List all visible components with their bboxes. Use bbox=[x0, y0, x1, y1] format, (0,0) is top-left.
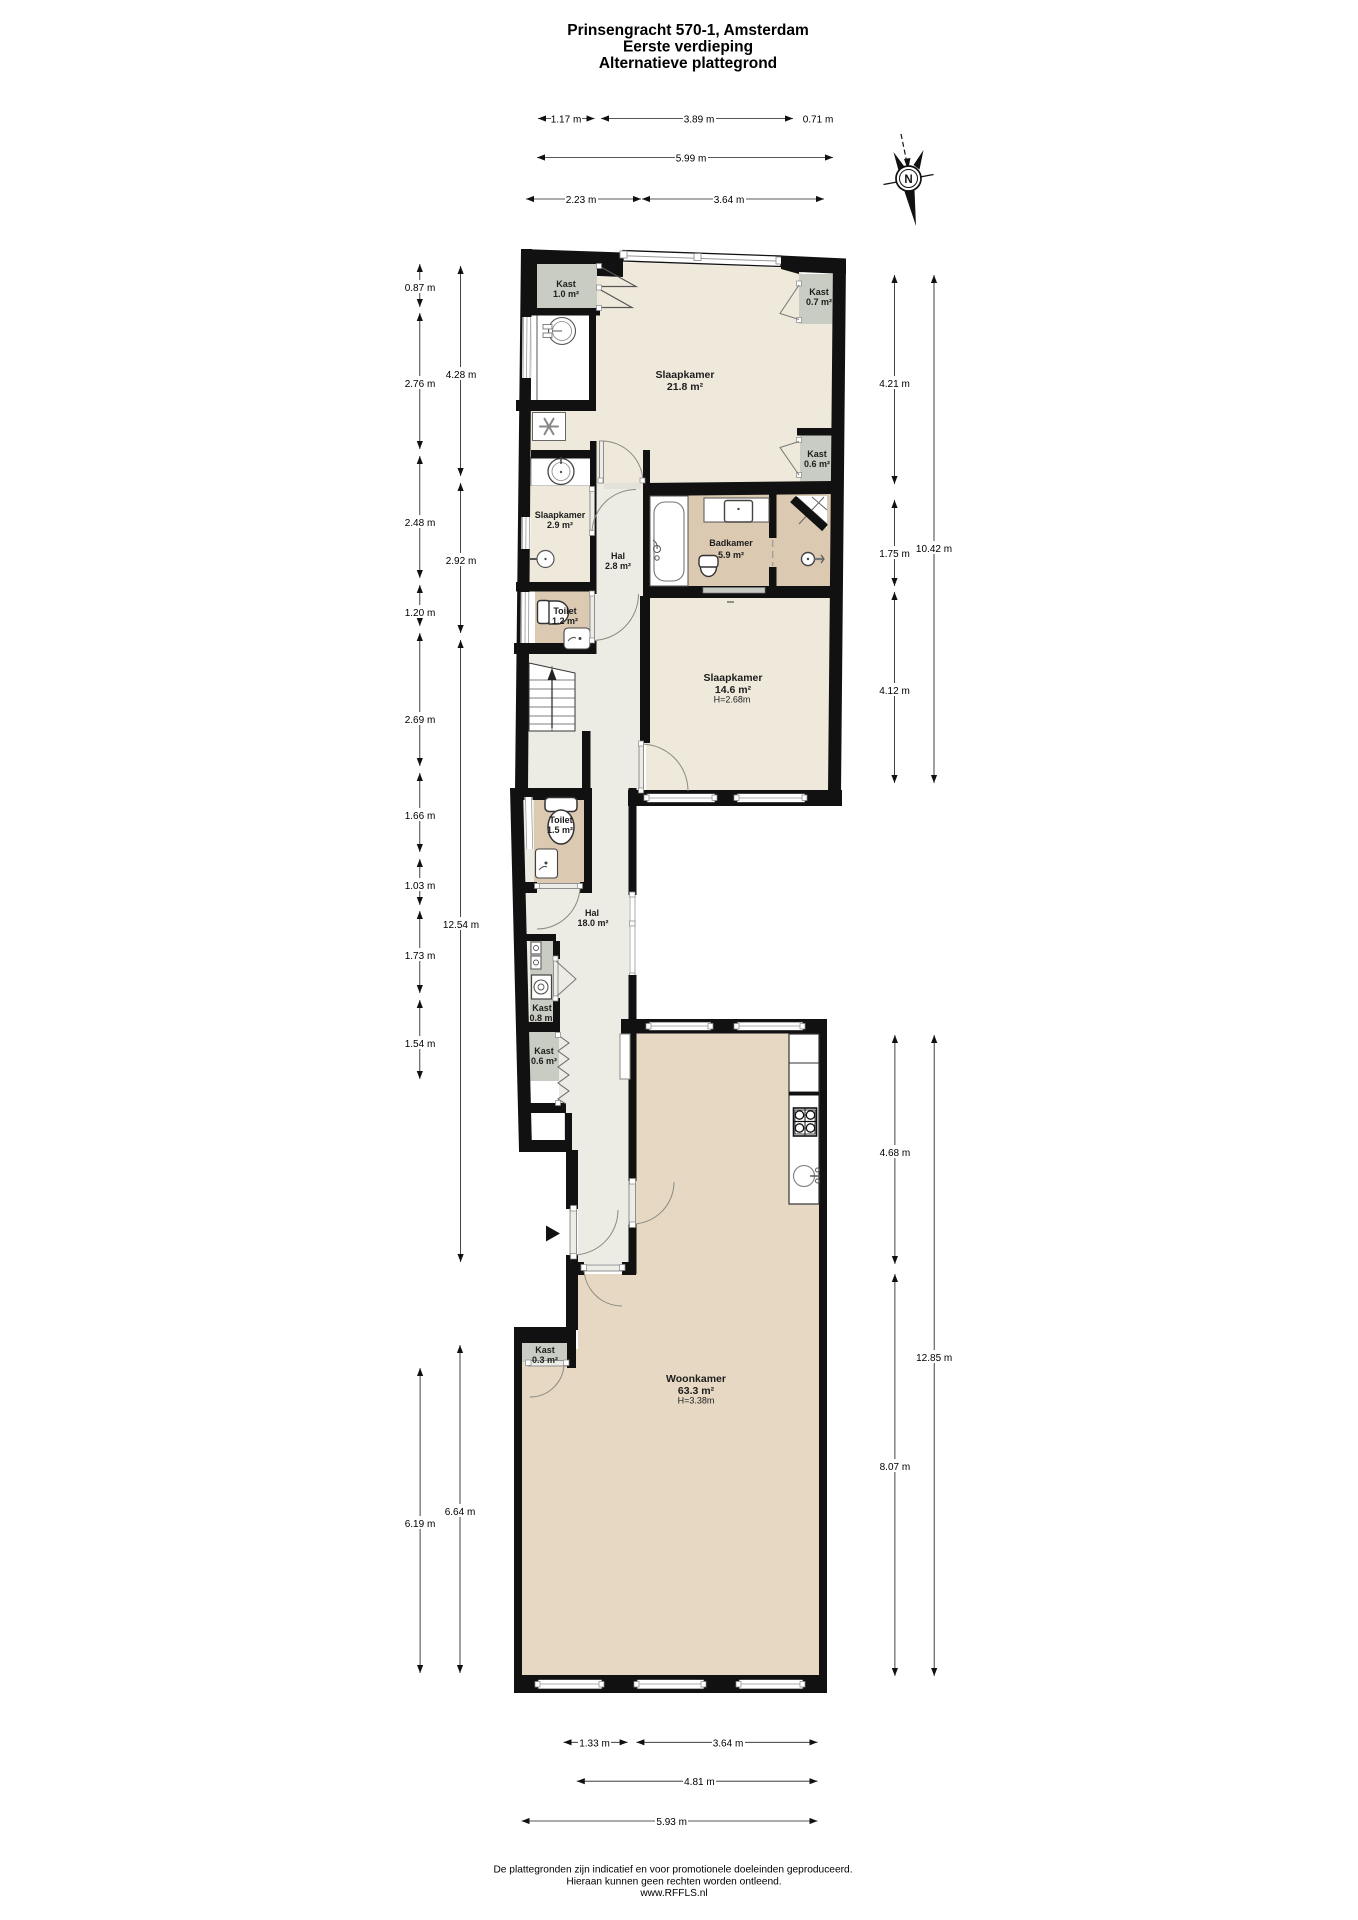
svg-text:1.66 m: 1.66 m bbox=[405, 811, 436, 822]
svg-text:Toilet: Toilet bbox=[553, 606, 576, 616]
svg-text:5.9 m²: 5.9 m² bbox=[718, 550, 744, 560]
svg-text:2.92 m: 2.92 m bbox=[446, 556, 477, 567]
svg-text:0.6 m²: 0.6 m² bbox=[804, 459, 830, 469]
svg-text:1.33 m: 1.33 m bbox=[579, 1738, 610, 1749]
svg-text:1.73 m: 1.73 m bbox=[405, 951, 436, 962]
svg-text:5.93 m: 5.93 m bbox=[656, 1817, 687, 1828]
svg-text:De plattegronden zijn indicati: De plattegronden zijn indicatief en voor… bbox=[493, 1865, 852, 1876]
svg-text:5.99 m: 5.99 m bbox=[676, 154, 707, 165]
svg-text:8.07 m: 8.07 m bbox=[880, 1462, 911, 1473]
svg-text:Slaapkamer: Slaapkamer bbox=[535, 510, 586, 520]
svg-text:3.89 m: 3.89 m bbox=[684, 115, 715, 126]
svg-text:4.68 m: 4.68 m bbox=[880, 1148, 911, 1159]
svg-text:www.RFFLS.nl: www.RFFLS.nl bbox=[639, 1888, 707, 1899]
svg-text:Eerste verdieping: Eerste verdieping bbox=[623, 39, 753, 56]
svg-text:0.8 m: 0.8 m bbox=[529, 1013, 552, 1023]
svg-text:Kast: Kast bbox=[534, 1046, 554, 1056]
svg-text:1.54 m: 1.54 m bbox=[405, 1039, 436, 1050]
svg-text:Badkamer: Badkamer bbox=[709, 538, 753, 548]
svg-text:2.48 m: 2.48 m bbox=[405, 518, 436, 529]
svg-text:2.9 m²: 2.9 m² bbox=[547, 520, 573, 530]
svg-text:0.7 m²: 0.7 m² bbox=[806, 297, 832, 307]
svg-text:Kast: Kast bbox=[556, 279, 576, 289]
svg-text:Kast: Kast bbox=[809, 287, 829, 297]
svg-text:6.19 m: 6.19 m bbox=[405, 1519, 436, 1530]
svg-text:Prinsengracht 570-1, Amsterdam: Prinsengracht 570-1, Amsterdam bbox=[567, 22, 809, 39]
svg-text:4.12 m: 4.12 m bbox=[879, 686, 910, 697]
svg-text:4.21 m: 4.21 m bbox=[879, 379, 910, 390]
svg-text:2.76 m: 2.76 m bbox=[405, 379, 436, 390]
svg-text:2.69 m: 2.69 m bbox=[405, 715, 436, 726]
svg-text:0.71 m: 0.71 m bbox=[803, 115, 834, 126]
svg-text:Kast: Kast bbox=[807, 449, 827, 459]
svg-text:Hal: Hal bbox=[611, 551, 625, 561]
svg-text:3.64 m: 3.64 m bbox=[714, 195, 745, 206]
svg-text:Woonkamer: Woonkamer bbox=[666, 1373, 726, 1385]
svg-text:Kast: Kast bbox=[532, 1003, 552, 1013]
svg-text:N: N bbox=[904, 174, 912, 186]
svg-text:Kast: Kast bbox=[535, 1345, 555, 1355]
svg-text:6.64 m: 6.64 m bbox=[445, 1507, 476, 1518]
svg-text:12.54 m: 12.54 m bbox=[443, 920, 479, 931]
svg-text:Alternatieve plattegrond: Alternatieve plattegrond bbox=[599, 55, 777, 72]
svg-text:1.17 m: 1.17 m bbox=[551, 115, 582, 126]
svg-text:Hieraan kunnen geen rechten wo: Hieraan kunnen geen rechten worden ontle… bbox=[566, 1877, 781, 1888]
svg-text:1.20 m: 1.20 m bbox=[405, 608, 436, 619]
svg-text:H=2.68m: H=2.68m bbox=[714, 695, 751, 705]
svg-text:2.8 m²: 2.8 m² bbox=[605, 561, 631, 571]
svg-text:Toilet: Toilet bbox=[549, 815, 572, 825]
svg-text:H=3.38m: H=3.38m bbox=[678, 1396, 715, 1406]
svg-text:1.2 m²: 1.2 m² bbox=[552, 616, 578, 626]
svg-text:4.81 m: 4.81 m bbox=[684, 1777, 715, 1788]
svg-text:Hal: Hal bbox=[585, 908, 599, 918]
svg-text:0.6 m²: 0.6 m² bbox=[531, 1056, 557, 1066]
svg-text:1.0 m²: 1.0 m² bbox=[553, 289, 579, 299]
svg-text:2.23 m: 2.23 m bbox=[566, 195, 597, 206]
svg-text:18.0 m²: 18.0 m² bbox=[577, 918, 608, 928]
svg-text:12.85 m: 12.85 m bbox=[916, 1353, 952, 1364]
svg-text:21.8 m²: 21.8 m² bbox=[667, 381, 704, 393]
svg-text:Slaapkamer: Slaapkamer bbox=[704, 672, 763, 684]
svg-text:3.64 m: 3.64 m bbox=[713, 1738, 744, 1749]
svg-text:Slaapkamer: Slaapkamer bbox=[656, 369, 715, 381]
svg-text:1.03 m: 1.03 m bbox=[405, 881, 436, 892]
svg-text:1.5 m²: 1.5 m² bbox=[547, 825, 573, 835]
svg-text:0.87 m: 0.87 m bbox=[405, 283, 436, 294]
svg-text:4.28 m: 4.28 m bbox=[446, 370, 477, 381]
svg-text:0.3 m²: 0.3 m² bbox=[532, 1355, 558, 1365]
svg-text:10.42 m: 10.42 m bbox=[916, 544, 952, 555]
svg-text:1.75 m: 1.75 m bbox=[879, 549, 910, 560]
